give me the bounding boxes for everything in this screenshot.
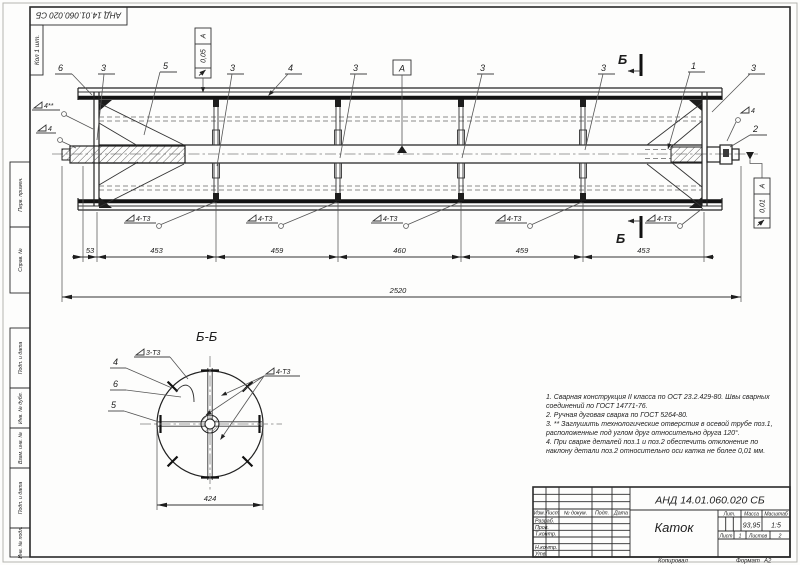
note-line: расположенные под углом друг относительн…: [545, 429, 740, 437]
svg-text:4-Т3: 4-Т3: [276, 369, 291, 376]
svg-text:Лист: Лист: [719, 533, 733, 539]
svg-text:Масштаб: Масштаб: [764, 512, 788, 518]
margin-column: Перв. примен. Справ. № Подп. и дата Инв.…: [10, 162, 30, 559]
svg-text:1: 1: [739, 533, 742, 539]
section-view-bb: Б-Б 4 6 5 3-Т3 4-Т3: [108, 329, 300, 510]
section-letter: Б: [618, 52, 627, 67]
dim-424: 424: [204, 494, 217, 503]
svg-text:6: 6: [113, 379, 118, 389]
margin-label: Подп. и дата: [18, 482, 24, 515]
svg-text:Изм.: Изм.: [534, 511, 545, 517]
sheet-frame: [3, 3, 797, 562]
svg-text:5: 5: [111, 400, 117, 410]
dim-453: 453: [150, 246, 163, 255]
callout-pos-4-section: 4: [110, 357, 172, 388]
dim-53: 53: [86, 246, 95, 255]
shaft-left: [62, 146, 185, 163]
svg-text:3-Т3: 3-Т3: [146, 350, 161, 357]
callout-pos-6: 6: [55, 63, 92, 95]
svg-text:Н.контр.: Н.контр.: [535, 545, 557, 551]
note-line: 1. Сварная конструкция II класса по ОСТ …: [546, 394, 770, 401]
weld-flag-3t3: 3-Т3: [134, 349, 188, 379]
weld-flag-4t3: 4-Т3: [645, 208, 703, 228]
svg-text:№ докум.: № докум.: [564, 511, 587, 517]
svg-text:Утв.: Утв.: [535, 552, 547, 558]
title-block-header-cols: Изм. Лист № докум. Подп. Дата: [534, 511, 628, 517]
note-line: 2. Ручная дуговая сварка по ГОСТ 5264-80…: [545, 411, 688, 419]
svg-text:6: 6: [58, 63, 63, 73]
svg-text:4-Т3: 4-Т3: [258, 216, 273, 223]
dim-overall-2520: 2520: [389, 286, 408, 295]
svg-text:1: 1: [691, 61, 696, 71]
note-line: соединений по ГОСТ 14771-76.: [546, 402, 648, 410]
fcf-runout-left: А 0,05: [195, 28, 211, 93]
lit-mass-scale: Лит. Масса Масштаб: [723, 512, 788, 518]
svg-text:4: 4: [288, 63, 293, 73]
fcf-right-value: 0,01: [760, 199, 767, 213]
sheet-count-row: Лист 1 Листов 2: [719, 533, 782, 539]
svg-text:3: 3: [101, 63, 106, 73]
svg-text:3: 3: [601, 63, 606, 73]
svg-text:Т.контр.: Т.контр.: [535, 532, 556, 538]
svg-text:Масса: Масса: [744, 512, 759, 518]
callout-pos-3-rib1: 3: [217, 63, 244, 166]
dim-459: 459: [271, 246, 284, 255]
svg-text:4: 4: [48, 126, 52, 133]
svg-text:2: 2: [778, 533, 782, 539]
dim-460: 460: [393, 246, 406, 255]
svg-text:4-Т3: 4-Т3: [136, 216, 151, 223]
margin-label: Перв. примен.: [18, 177, 24, 211]
svg-text:Пров.: Пров.: [535, 525, 549, 531]
note-line: наклону детали поз.2 относительно оси ка…: [546, 447, 765, 455]
runout-symbol-icon: [758, 220, 765, 226]
margin-label: Справ. №: [18, 248, 24, 272]
svg-text:Лит.: Лит.: [723, 512, 736, 518]
format-label: Формат: [736, 559, 760, 565]
svg-text:5: 5: [163, 61, 169, 71]
svg-text:Подп.: Подп.: [595, 511, 609, 517]
section-letter: Б: [616, 231, 625, 246]
format-value: А2: [763, 559, 772, 565]
svg-text:4: 4: [751, 108, 755, 115]
corner-qty-label: Кол 1 шт.: [34, 35, 41, 65]
callout-pos-3-rib3: 3: [462, 63, 494, 158]
margin-label: Взам. инв. №: [18, 432, 24, 464]
copy-label: Копировал: [658, 559, 688, 565]
callout-pos-2: 2: [730, 124, 767, 147]
part-name: Каток: [655, 520, 695, 535]
svg-text:2: 2: [752, 124, 758, 134]
drawing-canvas: АНД 14.01.060.020 СБ Кол 1 шт. Перв. при…: [0, 0, 800, 565]
svg-text:4-Т3: 4-Т3: [507, 216, 522, 223]
svg-text:3: 3: [480, 63, 485, 73]
shaft-right: [645, 145, 739, 164]
note-line: 4. При сварке деталей поз.1 и поз.2 обес…: [546, 438, 758, 446]
callout-pos-5-section: 5: [108, 400, 159, 422]
datum-a-label: А: [398, 64, 405, 74]
margin-label: Подп. и дата: [18, 342, 24, 375]
margin-label: Инв. № дубл.: [18, 392, 24, 424]
drawing-sheet: АНД 14.01.060.020 СБ Кол 1 шт. Перв. при…: [0, 0, 800, 565]
gussets: [99, 103, 702, 207]
section-title: Б-Б: [196, 329, 218, 344]
mass-value: 93,95: [743, 523, 761, 530]
svg-text:Дата: Дата: [613, 511, 628, 517]
callout-pos-4: 4: [269, 63, 303, 96]
callout-pos-3-rib4: 3: [585, 63, 615, 150]
dim-459b: 459: [516, 246, 529, 255]
dim-453b: 453: [637, 246, 650, 255]
runout-symbol-icon: [199, 70, 206, 76]
margin-label: Инв. № подл.: [18, 526, 24, 558]
weld-flag-4-right: 4: [727, 107, 755, 141]
svg-text:4**: 4**: [44, 103, 54, 110]
fcf-left-datum: А: [201, 33, 208, 39]
svg-text:Листов: Листов: [748, 533, 768, 539]
weld-flag-4-left: 4: [36, 125, 76, 148]
svg-text:3: 3: [751, 63, 756, 73]
fcf-runout-right: А 0,01: [746, 152, 770, 228]
scale-value: 1:5: [771, 523, 781, 530]
datum-a-flag: А: [393, 60, 411, 153]
title-block: Изм. Лист № докум. Подп. Дата Разраб. Пр…: [533, 487, 790, 565]
svg-text:3: 3: [230, 63, 235, 73]
weld-flag-4t3-section: 4-Т3: [206, 368, 300, 440]
note-line: 3. ** Заглушить технологические отверсти…: [546, 420, 773, 428]
svg-text:3: 3: [353, 63, 358, 73]
fcf-right-datum: А: [760, 183, 767, 189]
svg-text:4: 4: [113, 357, 118, 367]
section-cut-mark-bottom: Б: [616, 216, 641, 246]
weld-flag-4-star: 4**: [32, 102, 93, 129]
corner-doc-number: АНД 14.01.060.020 СБ: [35, 11, 122, 20]
technical-notes: 1. Сварная конструкция II класса по ОСТ …: [545, 394, 773, 455]
svg-text:Лист: Лист: [545, 511, 560, 517]
titleblock-doc-number: АНД 14.01.060.020 СБ: [654, 495, 765, 507]
section-cut-mark-top: Б: [618, 52, 641, 76]
fcf-left-value: 0,05: [201, 49, 208, 63]
svg-text:Разраб.: Разраб.: [535, 518, 554, 524]
main-view-roller: А А 0,05 А 0,01 Б: [32, 28, 770, 302]
callout-pos-3-rib2: 3: [340, 63, 367, 158]
svg-text:4-Т3: 4-Т3: [657, 216, 672, 223]
svg-text:4-Т3: 4-Т3: [383, 216, 398, 223]
corner-stamp: АНД 14.01.060.020 СБ Кол 1 шт.: [30, 7, 127, 75]
